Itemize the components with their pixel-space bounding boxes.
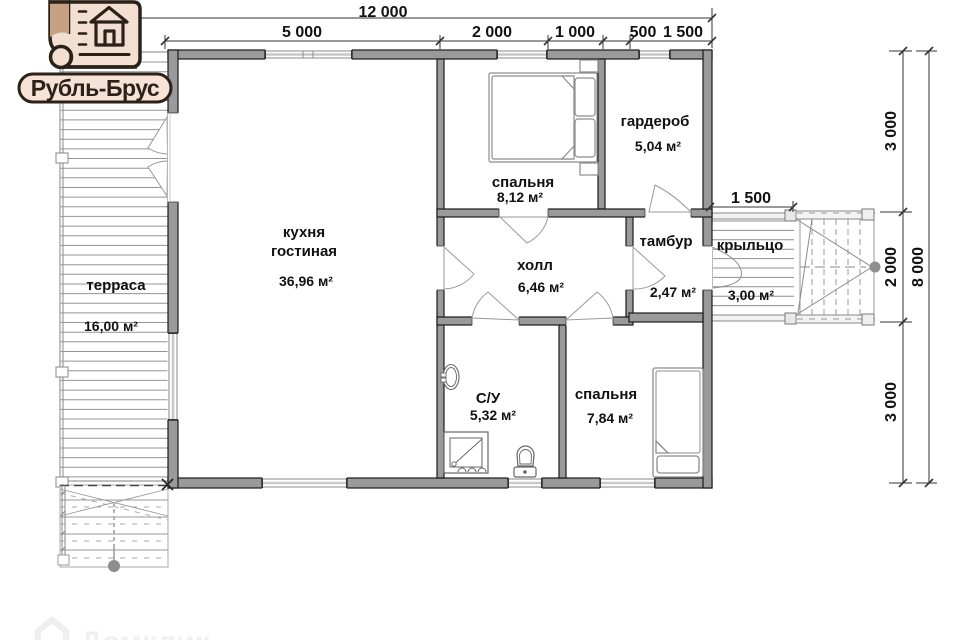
svg-text:спальня: спальня [575,386,637,403]
svg-text:гостиная: гостиная [271,243,337,260]
svg-text:3 000: 3 000 [883,111,900,151]
svg-text:16,00 м²: 16,00 м² [84,318,138,334]
svg-text:гардероб: гардероб [621,113,690,130]
svg-text:8,12 м²: 8,12 м² [497,189,543,205]
svg-text:Домклик: Домклик [80,626,211,640]
svg-text:8 000: 8 000 [910,247,927,287]
svg-text:5,32 м²: 5,32 м² [470,407,516,423]
svg-text:кухня: кухня [283,224,325,241]
svg-text:1 500: 1 500 [731,190,771,207]
svg-text:С/У: С/У [476,390,501,407]
svg-text:крыльцо: крыльцо [717,237,784,254]
svg-text:1 500: 1 500 [663,24,703,41]
svg-text:3,00 м²: 3,00 м² [728,287,774,303]
svg-text:7,84 м²: 7,84 м² [587,410,633,426]
svg-text:холл: холл [517,257,553,274]
svg-text:6,46 м²: 6,46 м² [518,279,564,295]
svg-text:1 000: 1 000 [555,24,595,41]
svg-text:Рубль-Брус: Рубль-Брус [31,75,160,101]
svg-text:2 000: 2 000 [472,24,512,41]
svg-text:2,47 м²: 2,47 м² [650,284,696,300]
svg-text:3 000: 3 000 [883,382,900,422]
svg-text:5 000: 5 000 [282,24,322,41]
svg-text:тамбур: тамбур [640,233,693,250]
svg-text:36,96 м²: 36,96 м² [279,273,333,289]
svg-text:5,04 м²: 5,04 м² [635,138,681,154]
svg-text:2 000: 2 000 [883,247,900,287]
svg-text:500: 500 [630,24,657,41]
svg-text:12 000: 12 000 [359,4,408,21]
svg-text:терраса: терраса [86,277,146,294]
